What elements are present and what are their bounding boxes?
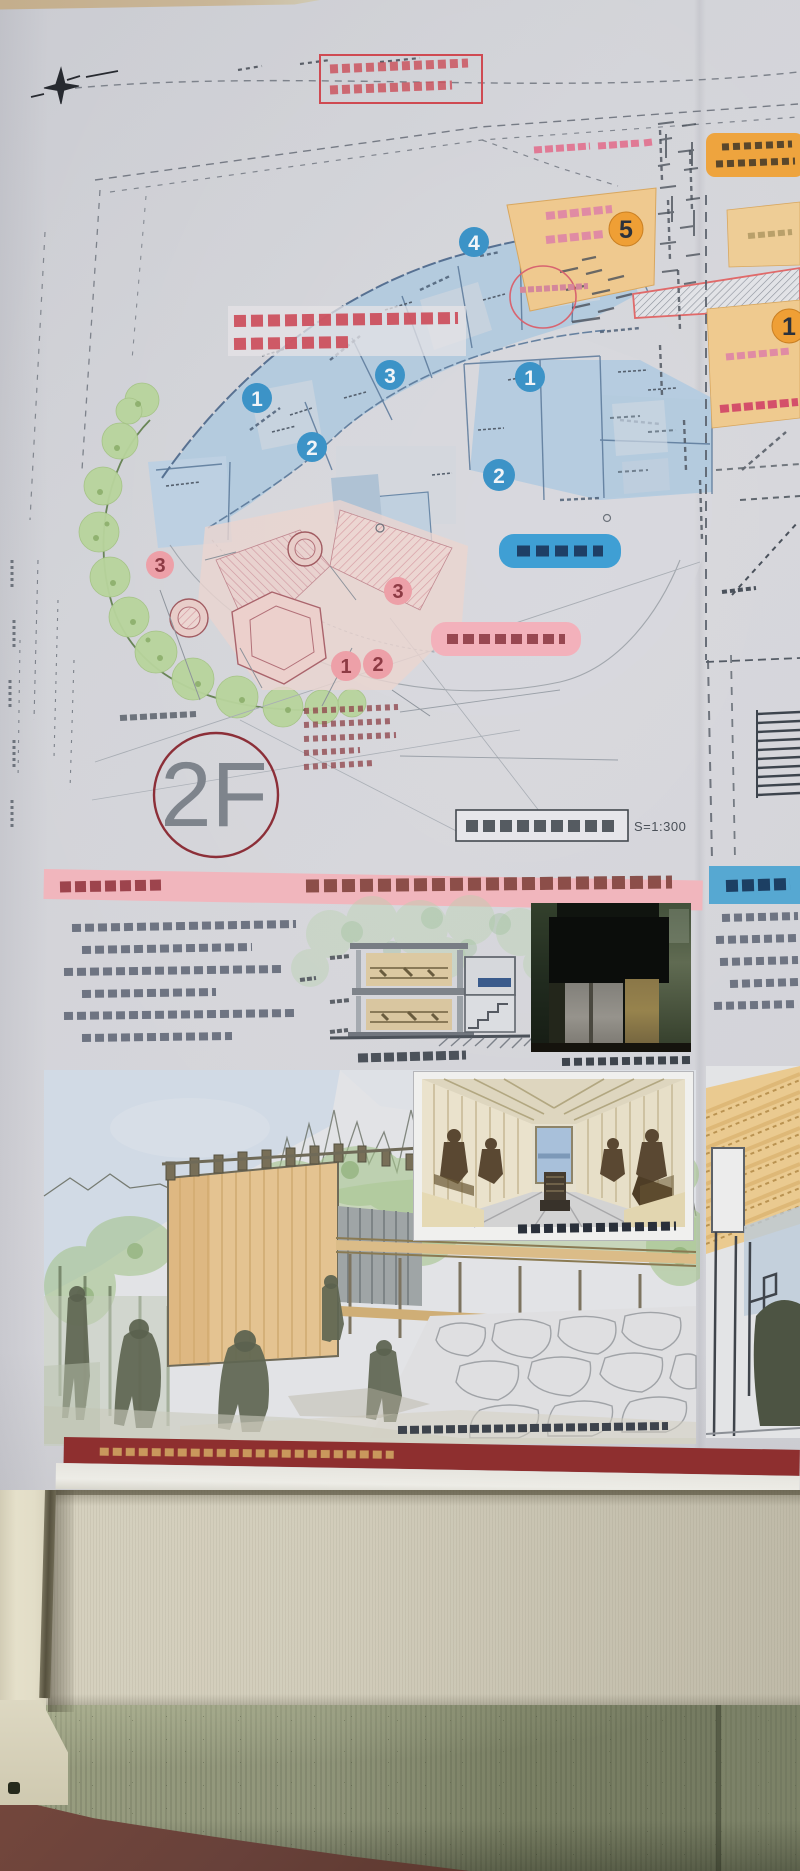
svg-text:1: 1 — [251, 388, 263, 411]
svg-text:5: 5 — [619, 216, 633, 244]
svg-text:2: 2 — [372, 654, 383, 676]
svg-text:3: 3 — [392, 581, 403, 603]
svg-text:1: 1 — [340, 656, 351, 678]
svg-text:3: 3 — [154, 555, 165, 577]
svg-text:1: 1 — [524, 367, 536, 390]
svg-text:2: 2 — [493, 465, 505, 488]
svg-text:S=1:300: S=1:300 — [634, 819, 686, 834]
svg-text:3: 3 — [384, 365, 396, 388]
svg-text:1: 1 — [782, 313, 796, 341]
svg-text:2F: 2F — [160, 744, 267, 846]
svg-text:2: 2 — [306, 437, 318, 460]
svg-text:4: 4 — [468, 232, 480, 255]
